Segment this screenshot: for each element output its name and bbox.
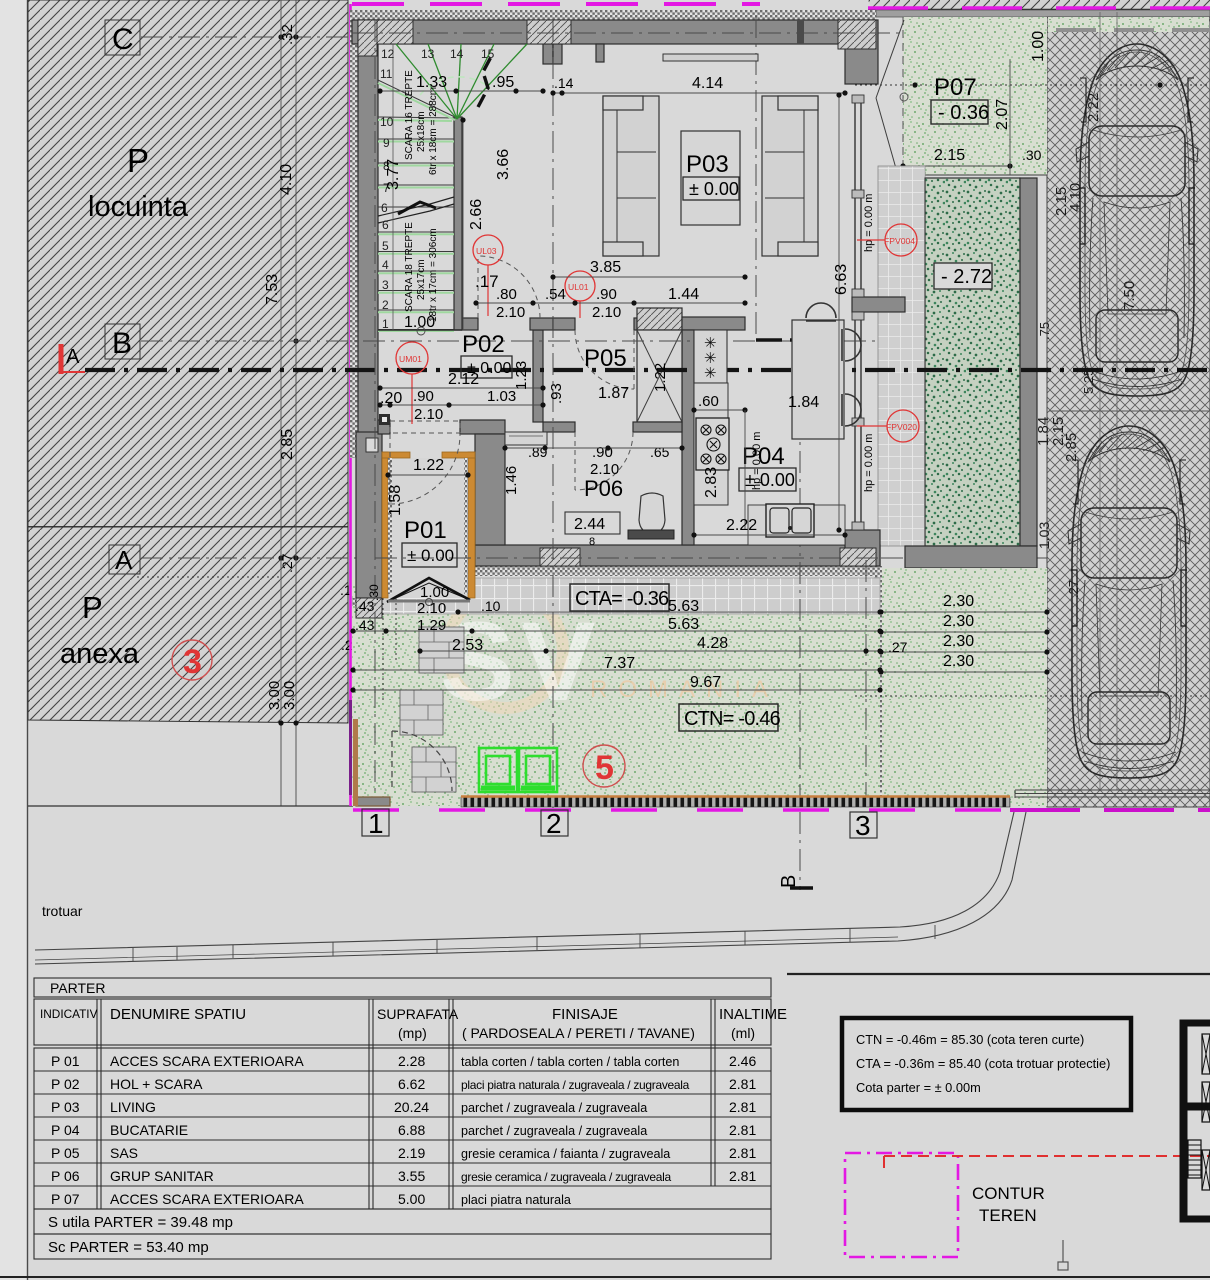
- svg-text:2.81: 2.81: [729, 1145, 756, 1161]
- svg-text:gresie ceramica / faianta /: gresie ceramica / faianta / zugraveala: [461, 1147, 670, 1161]
- svg-text:.65: .65: [650, 444, 670, 460]
- svg-text:1.00: 1.00: [404, 314, 435, 331]
- svg-text:placi piatra naturala: placi piatra naturala: [461, 1193, 571, 1207]
- svg-text:5: 5: [382, 239, 389, 253]
- svg-text:- 0.36: - 0.36: [938, 102, 989, 124]
- svg-text:B: B: [112, 327, 132, 360]
- svg-text:2.10: 2.10: [592, 304, 621, 321]
- svg-text:parchet / zugraveala / zugrav: parchet / zugraveala / zugraveala: [461, 1124, 647, 1138]
- svg-text:ACCES SCARA EXTERIOARA: ACCES SCARA EXTERIOARA: [110, 1053, 304, 1069]
- svg-text:GRUP SANITAR: GRUP SANITAR: [110, 1168, 214, 1184]
- svg-text:2.66: 2.66: [468, 199, 485, 230]
- svg-text:3: 3: [183, 643, 202, 681]
- svg-text:✳: ✳: [704, 365, 717, 382]
- svg-text:1: 1: [382, 317, 389, 331]
- svg-text:.32: .32: [279, 24, 296, 45]
- svg-text:2: 2: [382, 298, 389, 312]
- svg-text:A: A: [66, 346, 80, 368]
- svg-text:13: 13: [421, 47, 435, 61]
- svg-text:2.44: 2.44: [574, 516, 605, 533]
- svg-text:SCARA 16 TREPTE: SCARA 16 TREPTE: [404, 70, 415, 160]
- svg-text:HOL + SCARA: HOL + SCARA: [110, 1076, 203, 1092]
- svg-text:± 0.00: ± 0.00: [689, 179, 739, 199]
- svg-text:1.22: 1.22: [413, 457, 444, 474]
- svg-text:trotuar: trotuar: [42, 903, 83, 919]
- svg-text:25x17cm: 25x17cm: [416, 259, 427, 300]
- svg-text:1.22: 1.22: [652, 363, 669, 392]
- svg-text:3.85: 3.85: [590, 259, 621, 276]
- svg-text:14: 14: [450, 47, 464, 61]
- svg-text:10: 10: [380, 115, 394, 129]
- svg-text:2.19: 2.19: [398, 1145, 425, 1161]
- svg-text:TEREN: TEREN: [979, 1206, 1037, 1225]
- svg-text:( PARDOSEALA / PERETI / TAVANE: ( PARDOSEALA / PERETI / TAVANE): [462, 1025, 695, 1041]
- svg-text:1.44: 1.44: [668, 286, 699, 303]
- svg-text:3: 3: [382, 278, 389, 292]
- svg-text:2.07: 2.07: [994, 99, 1011, 130]
- svg-text:2.12: 2.12: [448, 371, 479, 388]
- svg-text:INDICATIV: INDICATIV: [40, 1007, 98, 1021]
- svg-text:.93: .93: [548, 383, 565, 404]
- svg-text:P06: P06: [584, 476, 623, 501]
- svg-text:5.63: 5.63: [668, 598, 699, 615]
- svg-text:2.81: 2.81: [729, 1168, 756, 1184]
- svg-text:.90: .90: [413, 388, 434, 405]
- svg-text:(mp): (mp): [398, 1025, 427, 1041]
- svg-text:12: 12: [381, 47, 395, 61]
- svg-text:P: P: [82, 590, 103, 625]
- svg-text:7.53: 7.53: [264, 274, 281, 305]
- svg-text:hp = 0.00 m: hp = 0.00 m: [863, 434, 875, 492]
- svg-text:- 2.72: - 2.72: [941, 266, 992, 288]
- svg-text:6: 6: [382, 218, 389, 232]
- svg-text:P 02: P 02: [51, 1076, 80, 1092]
- svg-text:(ml): (ml): [731, 1025, 755, 1041]
- svg-text:2.81: 2.81: [729, 1122, 756, 1138]
- svg-text:4.10: 4.10: [1067, 183, 1084, 212]
- svg-text:2.30: 2.30: [943, 613, 974, 630]
- svg-text:2.10: 2.10: [417, 600, 446, 617]
- svg-text:LIVING: LIVING: [110, 1099, 156, 1115]
- svg-text:tabla corten / tabla corten /: tabla corten / tabla corten / tabla cort…: [461, 1055, 679, 1069]
- svg-text:FPV020: FPV020: [886, 422, 917, 432]
- svg-text:UM01: UM01: [399, 354, 422, 364]
- svg-text:1: 1: [368, 808, 384, 839]
- svg-text:hp = 0.00 m: hp = 0.00 m: [863, 194, 875, 252]
- svg-text:1.23: 1.23: [513, 361, 530, 390]
- svg-text:9.67: 9.67: [690, 674, 721, 691]
- svg-text:.75: .75: [1037, 322, 1052, 340]
- svg-text:7.37: 7.37: [604, 655, 635, 672]
- svg-text:2.10: 2.10: [414, 406, 443, 423]
- svg-text:2.81: 2.81: [729, 1099, 756, 1115]
- svg-text:.90: .90: [596, 286, 617, 303]
- svg-text:DENUMIRE SPATIU: DENUMIRE SPATIU: [110, 1006, 246, 1023]
- svg-text:.54: .54: [545, 286, 566, 303]
- svg-text:gresie ceramica / zugraveala: gresie ceramica / zugraveala / zugraveal…: [461, 1170, 671, 1184]
- svg-text:BUCATARIE: BUCATARIE: [110, 1122, 188, 1138]
- svg-text:15: 15: [481, 47, 495, 61]
- svg-text:P 05: P 05: [51, 1145, 80, 1161]
- svg-text:P04: P04: [742, 443, 785, 470]
- svg-text:6: 6: [381, 201, 388, 215]
- svg-text:2.10: 2.10: [590, 461, 619, 478]
- svg-text:P02: P02: [462, 331, 505, 358]
- svg-text:6.88: 6.88: [398, 1122, 425, 1138]
- svg-text:S utila PARTER = 39.48 mp: S utila PARTER = 39.48 mp: [48, 1214, 233, 1231]
- svg-text:CTN = -0.46m = 85.30 (cota ter: CTN = -0.46m = 85.30 (cota teren curte): [856, 1032, 1084, 1047]
- svg-text:1.03: 1.03: [1036, 522, 1052, 549]
- svg-text:2.85: 2.85: [279, 429, 296, 460]
- svg-text:2.46: 2.46: [729, 1053, 756, 1069]
- svg-text:C: C: [112, 23, 134, 56]
- svg-text:5: 5: [595, 749, 614, 787]
- svg-text:P 07: P 07: [51, 1191, 80, 1207]
- svg-text:5.25: 5.25: [1081, 369, 1096, 394]
- svg-text:1.58: 1.58: [387, 485, 404, 516]
- svg-text:Sc PARTER = 53.40 mp: Sc PARTER = 53.40 mp: [48, 1239, 209, 1256]
- svg-text:1.33: 1.33: [416, 74, 447, 91]
- svg-text:P 04: P 04: [51, 1122, 80, 1138]
- svg-text:2.15: 2.15: [934, 147, 965, 164]
- svg-text:2.81: 2.81: [729, 1076, 756, 1092]
- svg-text:.30: .30: [1022, 147, 1042, 163]
- svg-text:2.10: 2.10: [496, 304, 525, 321]
- svg-text:2.22: 2.22: [1085, 93, 1102, 122]
- svg-text:ROMANIA: ROMANIA: [590, 676, 779, 703]
- svg-text:1.46: 1.46: [503, 466, 520, 495]
- svg-text:P: P: [127, 142, 149, 179]
- svg-text:CTN= -0.46: CTN= -0.46: [684, 708, 781, 730]
- svg-text:.14: .14: [554, 75, 574, 91]
- svg-text:11: 11: [380, 67, 393, 81]
- svg-text:.95: .95: [492, 74, 514, 91]
- svg-text:P 06: P 06: [51, 1168, 80, 1184]
- svg-text:2: 2: [546, 808, 562, 839]
- svg-text:2.22: 2.22: [726, 517, 757, 534]
- svg-text:20.24: 20.24: [394, 1099, 429, 1115]
- svg-text:5.63: 5.63: [668, 616, 699, 633]
- svg-text:A: A: [115, 545, 133, 575]
- svg-text:1.00: 1.00: [420, 584, 449, 601]
- svg-text:6.63: 6.63: [833, 264, 850, 295]
- svg-text:UL03: UL03: [476, 246, 497, 256]
- svg-text:Cota parter = ± 0.00m: Cota parter = ± 0.00m: [856, 1080, 981, 1095]
- svg-text:3.55: 3.55: [398, 1168, 425, 1184]
- svg-text:3.77: 3.77: [385, 159, 402, 190]
- svg-text:5.00: 5.00: [398, 1191, 425, 1207]
- svg-text:4.14: 4.14: [692, 75, 723, 92]
- svg-text:.27: .27: [279, 553, 295, 573]
- svg-text:2.30: 2.30: [943, 593, 974, 610]
- svg-text:3: 3: [855, 810, 871, 841]
- svg-text:2.85: 2.85: [1063, 433, 1080, 462]
- svg-text:CTA= -0.36: CTA= -0.36: [575, 588, 669, 610]
- svg-text:anexa: anexa: [60, 638, 140, 670]
- svg-text:.27: .27: [888, 639, 908, 655]
- svg-text:1.00: 1.00: [1030, 31, 1047, 62]
- svg-text:P07: P07: [934, 74, 977, 101]
- svg-text:SUPRAFATA: SUPRAFATA: [377, 1006, 459, 1022]
- svg-text:± 0.00: ± 0.00: [407, 546, 454, 565]
- svg-text:FINISAJE: FINISAJE: [552, 1006, 618, 1023]
- svg-text:9: 9: [383, 136, 390, 150]
- svg-text:SCARA 18 TREPTE: SCARA 18 TREPTE: [404, 222, 415, 312]
- svg-text:2.28: 2.28: [398, 1053, 425, 1069]
- svg-text:P 01: P 01: [51, 1053, 80, 1069]
- svg-text:2.30: 2.30: [943, 653, 974, 670]
- svg-text:B: B: [778, 875, 800, 888]
- svg-text:P01: P01: [404, 517, 447, 544]
- svg-text:25x18cm: 25x18cm: [416, 111, 427, 152]
- svg-text:ACCES SCARA EXTERIOARA: ACCES SCARA EXTERIOARA: [110, 1191, 304, 1207]
- svg-text:18tr x 17cm = 306cm: 18tr x 17cm = 306cm: [428, 228, 439, 322]
- svg-text:P 03: P 03: [51, 1099, 80, 1115]
- svg-text:2.30: 2.30: [943, 633, 974, 650]
- svg-text:1.84: 1.84: [788, 394, 819, 411]
- svg-text:6.62: 6.62: [398, 1076, 425, 1092]
- svg-text:4: 4: [382, 258, 389, 272]
- svg-text:INALTIME: INALTIME: [719, 1006, 787, 1023]
- svg-text:6tr x 18cm = 288cm: 6tr x 18cm = 288cm: [428, 87, 439, 175]
- svg-text:UL01: UL01: [568, 282, 589, 292]
- svg-text:3.00: 3.00: [281, 681, 298, 710]
- svg-text:.27: .27: [1066, 580, 1081, 598]
- svg-text:1.87: 1.87: [598, 385, 629, 402]
- svg-text:.80: .80: [496, 286, 517, 303]
- svg-text:P05: P05: [584, 345, 627, 372]
- svg-text:CTA = -0.36m = 85.40 (cota tro: CTA = -0.36m = 85.40 (cota trotuar prote…: [856, 1056, 1110, 1071]
- svg-text:.60: .60: [698, 393, 719, 410]
- svg-text:SAS: SAS: [110, 1145, 138, 1161]
- svg-text:4.28: 4.28: [697, 635, 728, 652]
- svg-text:± 0.00: ± 0.00: [745, 470, 795, 490]
- svg-text:3.66: 3.66: [495, 149, 512, 180]
- svg-text:.43: .43: [355, 598, 375, 614]
- svg-text:PARTER: PARTER: [50, 980, 106, 996]
- svg-text:P03: P03: [686, 151, 729, 178]
- svg-text:1.03: 1.03: [487, 388, 516, 405]
- svg-text:locuinta: locuinta: [88, 191, 189, 223]
- svg-text:2.83: 2.83: [703, 467, 720, 498]
- svg-text:CONTUR: CONTUR: [972, 1184, 1045, 1203]
- svg-text:placi piatra naturala / zugrav: placi piatra naturala / zugraveala / zug…: [461, 1078, 690, 1092]
- svg-text:4.10: 4.10: [278, 164, 295, 195]
- svg-text:8: 8: [589, 536, 595, 548]
- svg-text:FPV004: FPV004: [884, 236, 915, 246]
- svg-text:parchet / zugraveala / zugrav: parchet / zugraveala / zugraveala: [461, 1101, 647, 1115]
- svg-text:.20: .20: [380, 390, 402, 407]
- svg-text:7.50: 7.50: [1121, 281, 1138, 310]
